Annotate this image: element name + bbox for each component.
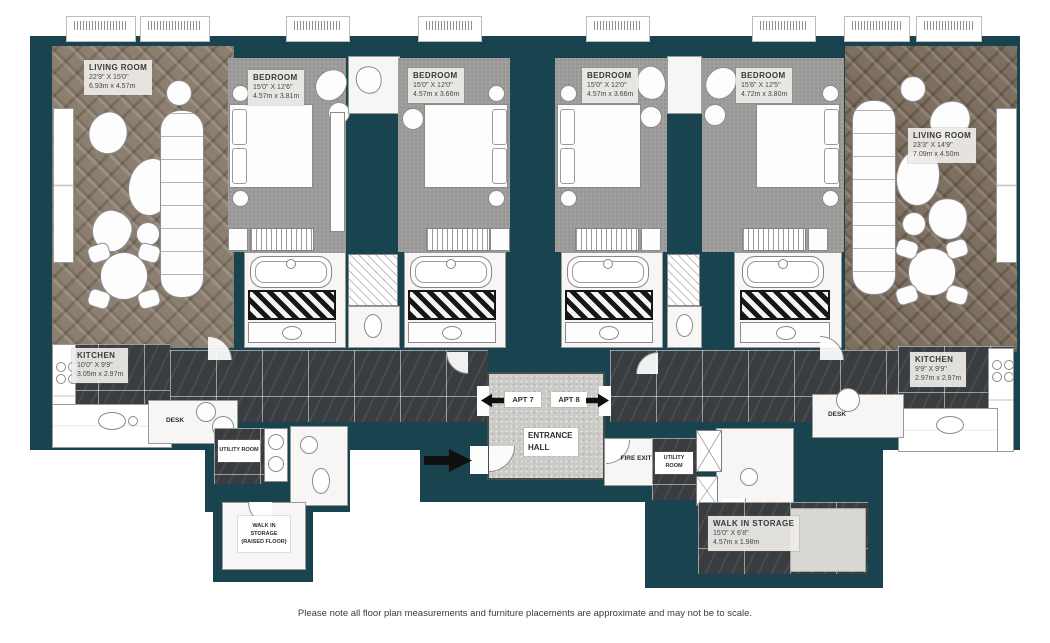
room-dim-imperial: 10'0" X 9'9" bbox=[77, 361, 123, 370]
hallway-lower-right bbox=[716, 428, 794, 508]
window-grille-icon bbox=[594, 21, 642, 30]
room-dim-metric: 4.57m x 1.98m bbox=[713, 538, 794, 547]
room-label-bedroom-2: BEDROOM 15'0" X 12'0" 4.57m x 3.66m bbox=[408, 68, 464, 103]
room-dim-metric: 4.57m x 3.66m bbox=[587, 90, 633, 99]
room-name: KITCHEN bbox=[77, 351, 123, 361]
room-dim-imperial: 15'0" X 6'8" bbox=[713, 529, 794, 538]
pillow bbox=[232, 148, 247, 184]
basin bbox=[740, 468, 758, 486]
apt8-text: APT 8 bbox=[558, 395, 579, 404]
bathroom-tile-floor bbox=[408, 290, 496, 320]
burner-icon bbox=[992, 372, 1002, 382]
room-name: BEDROOM bbox=[253, 73, 299, 83]
room-label-living-left: LIVING ROOM 22'9" X 15'0" 6.93m x 4.57m bbox=[84, 60, 152, 95]
bathroom-tile-floor bbox=[248, 290, 336, 320]
window-bay bbox=[916, 16, 982, 42]
room-label-bedroom-1: BEDROOM 15'0" X 12'6" 4.57m x 3.81m bbox=[248, 70, 304, 105]
window-bay bbox=[286, 16, 350, 42]
room-label-kitchen-left: KITCHEN 10'0" X 9'9" 3.05m x 2.97m bbox=[72, 348, 128, 383]
wardrobe bbox=[250, 228, 314, 251]
bathtub bbox=[410, 256, 492, 288]
pouf bbox=[402, 108, 424, 130]
window-grille-icon bbox=[924, 21, 974, 30]
pillow bbox=[492, 109, 507, 145]
room-dim-imperial: 15'0" X 12'0" bbox=[587, 81, 633, 90]
fire-exit-text: FIRE EXIT bbox=[620, 455, 651, 462]
storage-name: WALK IN STORAGE bbox=[244, 522, 284, 539]
floor-plan: LIVING ROOM 22'9" X 15'0" 6.93m x 4.57m … bbox=[0, 0, 1050, 643]
apt7-text: APT 7 bbox=[512, 395, 533, 404]
room-dim-metric: 7.09m x 4.50m bbox=[913, 150, 971, 159]
room-dim-metric: 6.93m x 4.57m bbox=[89, 82, 147, 91]
window-bay bbox=[66, 16, 136, 42]
bedside-table bbox=[232, 85, 249, 102]
bathtub bbox=[250, 256, 332, 288]
storage-platform bbox=[790, 508, 866, 572]
kitchen-sink bbox=[936, 416, 964, 434]
bedside-table bbox=[232, 190, 249, 207]
bedside-table bbox=[822, 190, 839, 207]
pouf bbox=[640, 106, 662, 128]
desk-label-text: DESK bbox=[828, 411, 846, 418]
cloakroom bbox=[290, 426, 348, 506]
sink bbox=[442, 326, 462, 340]
pillow bbox=[560, 109, 575, 145]
bathtub bbox=[742, 256, 824, 288]
dresser bbox=[490, 228, 510, 251]
sofa bbox=[852, 100, 896, 295]
footer-note: Please note all floor plan measurements … bbox=[0, 608, 1050, 619]
tap-icon bbox=[128, 416, 138, 426]
bathtub bbox=[567, 256, 649, 288]
burner-icon bbox=[56, 362, 66, 372]
window-grille-icon bbox=[148, 21, 202, 30]
room-name: WALK IN STORAGE bbox=[713, 519, 794, 529]
utility-label-left: UTILITY ROOM bbox=[218, 440, 260, 462]
desk-label-text: DESK bbox=[166, 417, 184, 424]
utility-text: UTILITY ROOM bbox=[655, 455, 693, 470]
bedside-table bbox=[488, 85, 505, 102]
window-bay bbox=[844, 16, 910, 42]
window-bay bbox=[586, 16, 650, 42]
apt8-label: APT 8 bbox=[551, 392, 587, 407]
pillow bbox=[824, 109, 839, 145]
sink bbox=[599, 326, 619, 340]
bathroom-tile-floor bbox=[740, 290, 830, 320]
washer-icon bbox=[268, 434, 284, 450]
window-grille-icon bbox=[426, 21, 474, 30]
window-grille-icon bbox=[852, 21, 902, 30]
wardrobe bbox=[742, 228, 806, 251]
dresser bbox=[808, 228, 828, 251]
bathroom-tile-floor bbox=[565, 290, 653, 320]
burner-icon bbox=[56, 374, 66, 384]
hob-icon bbox=[992, 360, 1014, 382]
entry-door-opening bbox=[470, 446, 488, 474]
sofa bbox=[160, 110, 204, 298]
burner-icon bbox=[1004, 360, 1014, 370]
room-dim-metric: 3.05m x 2.97m bbox=[77, 370, 123, 379]
room-dim-imperial: 15'6" X 12'5" bbox=[741, 81, 787, 90]
room-name: BEDROOM bbox=[741, 71, 787, 81]
storage-note: (RAISED FLOOR) bbox=[241, 538, 286, 546]
room-dim-metric: 4.57m x 3.81m bbox=[253, 92, 299, 101]
window-bay bbox=[140, 16, 210, 42]
room-dim-metric: 4.57m x 3.66m bbox=[413, 90, 459, 99]
room-dim-metric: 2.97m x 2.97m bbox=[915, 374, 961, 383]
bedside-table bbox=[822, 85, 839, 102]
shower bbox=[667, 254, 700, 306]
cabinet bbox=[996, 108, 1017, 263]
window-grille-icon bbox=[294, 21, 342, 30]
side-table bbox=[902, 212, 926, 236]
room-name: BEDROOM bbox=[587, 71, 633, 81]
utility-text: UTILITY ROOM bbox=[219, 447, 258, 455]
window-grille-icon bbox=[760, 21, 808, 30]
wardrobe bbox=[575, 228, 639, 251]
dryer-icon bbox=[268, 456, 284, 472]
side-table bbox=[166, 80, 192, 106]
pillow bbox=[824, 148, 839, 184]
wardrobe bbox=[426, 228, 490, 251]
room-name: LIVING ROOM bbox=[913, 131, 971, 141]
desk-shelf bbox=[330, 112, 345, 232]
storage-label-right: WALK IN STORAGE 15'0" X 6'8" 4.57m x 1.9… bbox=[708, 516, 799, 551]
room-label-kitchen-right: KITCHEN 9'9" X 9'9" 2.97m x 2.97m bbox=[910, 352, 966, 387]
room-label-bedroom-4: BEDROOM 15'6" X 12'5" 4.72m x 3.80m bbox=[736, 68, 792, 103]
pillow bbox=[492, 148, 507, 184]
sink bbox=[282, 326, 302, 340]
bedside-table bbox=[488, 190, 505, 207]
room-dim-metric: 4.72m x 3.80m bbox=[741, 90, 787, 99]
desk-label-right: DESK bbox=[820, 408, 854, 421]
bedside-table bbox=[560, 85, 577, 102]
room-dim-imperial: 15'0" X 12'0" bbox=[413, 81, 459, 90]
dressing-nook bbox=[667, 56, 702, 114]
dresser bbox=[228, 228, 248, 251]
window-bay bbox=[752, 16, 816, 42]
room-dim-imperial: 23'3" X 14'9" bbox=[913, 141, 971, 150]
shower bbox=[348, 254, 398, 306]
fire-exit-label: FIRE EXIT bbox=[612, 452, 660, 464]
apt7-label: APT 7 bbox=[505, 392, 541, 407]
pillow bbox=[232, 109, 247, 145]
window-bay bbox=[418, 16, 482, 42]
burner-icon bbox=[992, 360, 1002, 370]
pouf bbox=[704, 104, 726, 126]
room-name: BEDROOM bbox=[413, 71, 459, 81]
utility-label-right: UTILITY ROOM bbox=[655, 452, 693, 474]
side-table bbox=[900, 76, 926, 102]
storage-label-left: WALK IN STORAGE (RAISED FLOOR) bbox=[238, 516, 290, 552]
room-name: LIVING ROOM bbox=[89, 63, 147, 73]
desk-label-left: DESK bbox=[158, 414, 192, 427]
kitchen-sink bbox=[98, 412, 126, 430]
toilet bbox=[312, 468, 330, 494]
basin bbox=[300, 436, 318, 454]
room-label-bedroom-3: BEDROOM 15'0" X 12'0" 4.57m x 3.66m bbox=[582, 68, 638, 103]
room-dim-imperial: 9'9" X 9'9" bbox=[915, 365, 961, 374]
window-grille-icon bbox=[74, 21, 128, 30]
room-label-living-right: LIVING ROOM 23'3" X 14'9" 7.09m x 4.50m bbox=[908, 128, 976, 163]
sink bbox=[776, 326, 796, 340]
dresser bbox=[641, 228, 661, 251]
entrance-hall-label: ENTRANCE HALL bbox=[524, 428, 578, 456]
entrance-hall-text: ENTRANCE HALL bbox=[528, 431, 572, 452]
stool bbox=[196, 402, 216, 422]
cabinet bbox=[53, 108, 74, 263]
room-name: KITCHEN bbox=[915, 355, 961, 365]
toilet bbox=[676, 314, 693, 337]
room-dim-imperial: 22'9" X 15'0" bbox=[89, 73, 147, 82]
pillow bbox=[560, 148, 575, 184]
closet bbox=[696, 430, 722, 472]
burner-icon bbox=[1004, 372, 1014, 382]
bedside-table bbox=[560, 190, 577, 207]
room-dim-imperial: 15'0" X 12'6" bbox=[253, 83, 299, 92]
toilet bbox=[364, 314, 382, 338]
